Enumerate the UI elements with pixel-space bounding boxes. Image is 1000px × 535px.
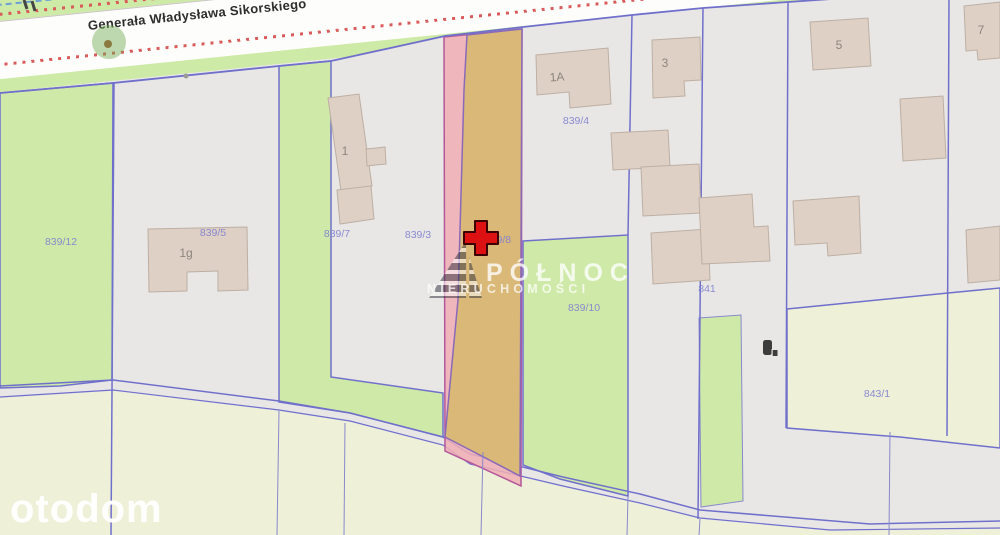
building-label-5: 5 [836, 38, 843, 52]
parcel-839-10 [523, 235, 628, 496]
parcel-843-1 [787, 288, 1000, 448]
parcel-label-841: 841 [698, 283, 716, 295]
building-label-1g: 1g [179, 246, 192, 260]
parcel-label-839-5: 839/5 [200, 227, 226, 239]
parcel-label-839-10: 839/10 [568, 302, 600, 314]
survey-mark-icon-2 [32, 1, 35, 11]
building-label-3: 3 [662, 56, 669, 70]
building-mid-1 [611, 130, 670, 170]
building-7-annex [966, 226, 1000, 283]
building-label-1: 1 [342, 144, 349, 158]
building-label-1A: 1A [549, 70, 565, 85]
map-viewport[interactable]: Generała Władysława Sikorskiego [0, 0, 1000, 535]
parcel-label-839-3: 839/3 [405, 229, 431, 241]
parcel-green-strip-right [699, 315, 743, 507]
building-mid-2 [641, 164, 701, 216]
boundary-point-dot [184, 74, 189, 79]
building-label-7: 7 [978, 23, 985, 37]
parcel-label-843-1: 843/1 [864, 388, 890, 400]
location-cross-marker [463, 220, 499, 256]
parcel-label-839-4: 839/4 [563, 115, 589, 127]
survey-mark-icon [24, 0, 27, 9]
tree-trunk-dot [104, 40, 112, 48]
building-1-lower [337, 186, 374, 224]
map-canvas[interactable] [0, 0, 1000, 535]
building-5-garage [900, 96, 946, 161]
building-1-annex [366, 147, 386, 166]
parcel-label-839-12: 839/12 [45, 236, 77, 248]
parcel-label-839-7: 839/7 [324, 228, 350, 240]
